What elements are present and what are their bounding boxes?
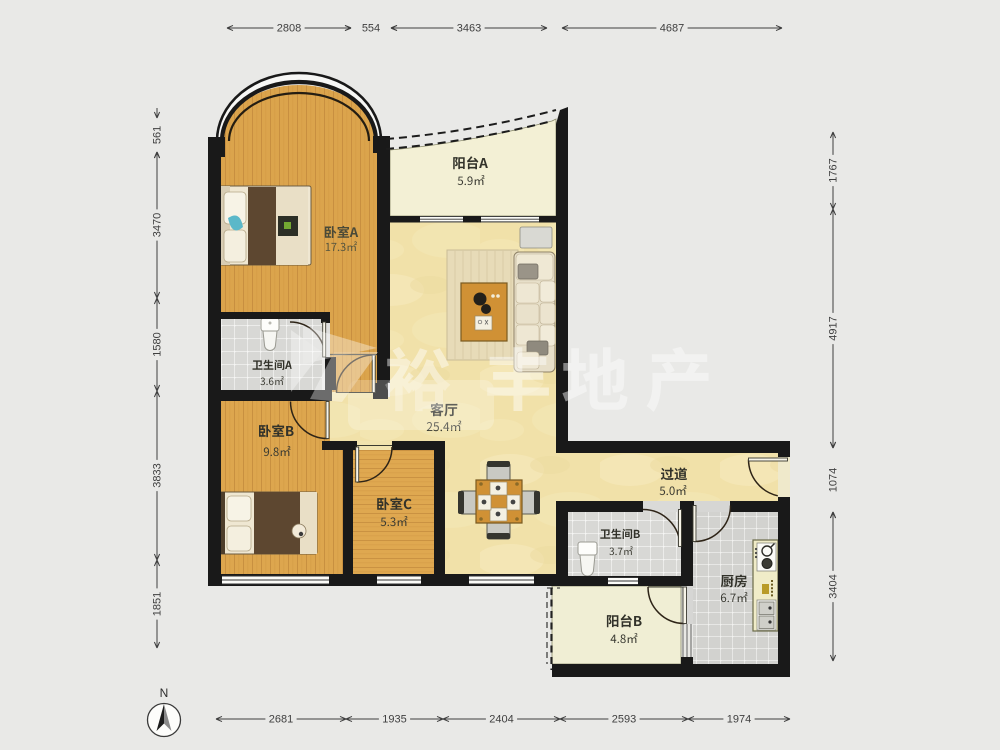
svg-text:1935: 1935 bbox=[382, 714, 406, 726]
svg-text:3833: 3833 bbox=[152, 463, 164, 487]
svg-text:1580: 1580 bbox=[152, 332, 164, 356]
svg-text:1851: 1851 bbox=[152, 592, 164, 616]
svg-text:561: 561 bbox=[152, 126, 164, 144]
svg-text:1974: 1974 bbox=[727, 714, 751, 726]
svg-text:4917: 4917 bbox=[828, 316, 840, 340]
svg-text:3404: 3404 bbox=[828, 574, 840, 598]
svg-text:554: 554 bbox=[362, 23, 380, 35]
svg-text:4687: 4687 bbox=[660, 23, 684, 35]
svg-text:3463: 3463 bbox=[457, 23, 481, 35]
svg-text:2681: 2681 bbox=[269, 714, 293, 726]
svg-text:3470: 3470 bbox=[152, 213, 164, 237]
svg-text:2593: 2593 bbox=[612, 714, 636, 726]
svg-text:2404: 2404 bbox=[489, 714, 513, 726]
svg-text:N: N bbox=[160, 686, 169, 700]
svg-text:1074: 1074 bbox=[828, 468, 840, 492]
svg-text:2808: 2808 bbox=[277, 23, 301, 35]
svg-text:1767: 1767 bbox=[828, 158, 840, 182]
